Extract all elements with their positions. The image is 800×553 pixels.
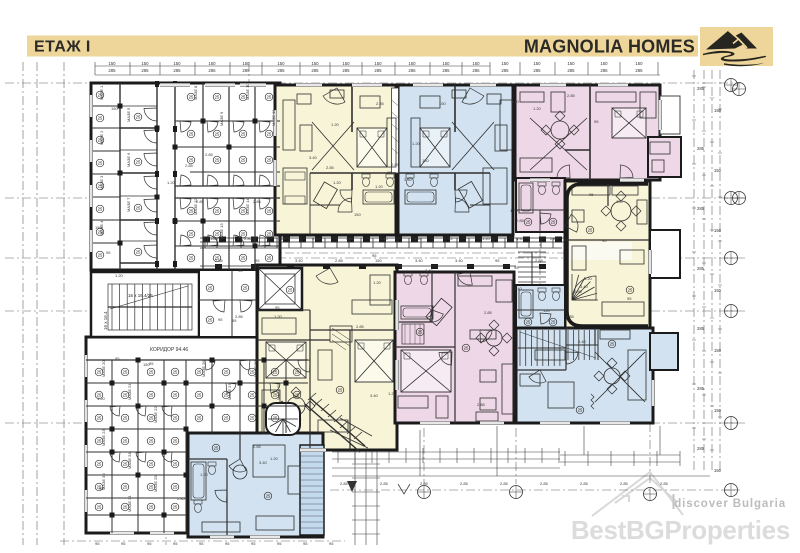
svg-text:285: 285 (208, 68, 216, 73)
svg-text:1.20: 1.20 (412, 141, 421, 146)
svg-text:25: 25 (267, 256, 272, 261)
svg-text:2.85: 2.85 (340, 481, 349, 486)
svg-text:285: 285 (697, 206, 705, 211)
svg-text:МАЗЕ 22: МАЗЕ 22 (153, 406, 158, 423)
svg-text:25: 25 (241, 132, 246, 137)
svg-text:95: 95 (251, 541, 256, 546)
svg-text:25: 25 (98, 253, 103, 258)
svg-text:25: 25 (628, 288, 633, 293)
svg-text:25: 25 (173, 485, 178, 490)
svg-text:150: 150 (95, 225, 102, 230)
svg-text:16 x 16.4: 16 x 16.4 (103, 311, 108, 330)
svg-text:150: 150 (600, 61, 608, 66)
svg-text:150: 150 (714, 288, 722, 293)
svg-text:95: 95 (627, 296, 632, 301)
svg-text:25: 25 (197, 416, 202, 421)
svg-text:95: 95 (95, 541, 100, 546)
svg-text:1.20: 1.20 (388, 391, 397, 396)
svg-text:2.85: 2.85 (660, 481, 669, 486)
svg-text:16 x 16.4/25: 16 x 16.4/25 (128, 293, 153, 298)
svg-text:95: 95 (275, 305, 280, 310)
svg-text:25: 25 (338, 388, 343, 393)
svg-text:95: 95 (218, 317, 223, 322)
svg-text:3.40: 3.40 (309, 155, 318, 160)
svg-text:МАЗЕ 10: МАЗЕ 10 (245, 83, 250, 100)
svg-text:2.85: 2.85 (235, 314, 244, 319)
svg-text:25: 25 (243, 286, 248, 291)
svg-text:1.20: 1.20 (584, 276, 593, 281)
svg-text:285: 285 (697, 326, 705, 331)
svg-text:МАЗЕ 14: МАЗЕ 14 (245, 198, 250, 215)
svg-text:25: 25 (267, 132, 272, 137)
svg-text:МАЗЕ 6: МАЗЕ 6 (126, 152, 131, 167)
svg-text:1.20: 1.20 (482, 236, 491, 241)
svg-text:1.20: 1.20 (278, 236, 287, 241)
svg-text:150: 150 (374, 61, 382, 66)
svg-text:МАЗЕ 27: МАЗЕ 27 (227, 383, 232, 400)
svg-text:95: 95 (277, 541, 282, 546)
svg-text:25: 25 (250, 416, 255, 421)
svg-text:2.85: 2.85 (391, 162, 400, 167)
svg-text:25: 25 (267, 232, 272, 237)
svg-text:285: 285 (533, 68, 541, 73)
svg-text:МАЗЕ 23: МАЗЕ 23 (101, 429, 106, 446)
svg-text:2.85: 2.85 (540, 481, 549, 486)
svg-text:150: 150 (242, 61, 250, 66)
svg-text:95: 95 (238, 268, 243, 273)
svg-text:150: 150 (714, 348, 722, 353)
svg-text:BestBGProperties: BestBGProperties (571, 515, 790, 545)
svg-text:95: 95 (495, 258, 500, 263)
svg-text:МАЗЕ 11: МАЗЕ 11 (271, 109, 276, 126)
svg-text:3.40: 3.40 (404, 177, 413, 182)
svg-text:1.20: 1.20 (380, 236, 389, 241)
svg-text:3.40: 3.40 (514, 286, 523, 291)
svg-text:МАЗЕ 9: МАЗЕ 9 (219, 111, 224, 126)
svg-text:3.40: 3.40 (346, 236, 355, 241)
svg-text:25: 25 (149, 393, 154, 398)
svg-text:1.20: 1.20 (200, 472, 209, 477)
svg-text:25: 25 (123, 416, 128, 421)
svg-text:3.40: 3.40 (415, 258, 424, 263)
svg-text:285: 285 (242, 68, 250, 73)
svg-text:150: 150 (714, 168, 722, 173)
svg-text:25: 25 (418, 330, 423, 335)
svg-text:МАЗЕ 5: МАЗЕ 5 (126, 107, 131, 122)
svg-text:2.85: 2.85 (215, 258, 224, 263)
svg-text:2.85: 2.85 (420, 481, 429, 486)
svg-text:95: 95 (225, 541, 230, 546)
svg-text:95: 95 (602, 238, 607, 243)
svg-text:95: 95 (594, 119, 599, 124)
svg-text:25: 25 (149, 505, 154, 510)
svg-text:1.20: 1.20 (115, 273, 124, 278)
svg-text:150: 150 (533, 61, 541, 66)
svg-text:25: 25 (266, 494, 271, 499)
svg-text:3.40: 3.40 (455, 258, 464, 263)
svg-text:95: 95 (99, 486, 104, 491)
svg-text:25: 25 (208, 318, 213, 323)
svg-text:25: 25 (288, 288, 293, 293)
svg-text:285: 285 (472, 68, 480, 73)
svg-text:95: 95 (121, 541, 126, 546)
svg-text:2.85: 2.85 (566, 314, 575, 319)
svg-text:25: 25 (208, 286, 213, 291)
svg-text:150: 150 (442, 61, 450, 66)
svg-text:25: 25 (224, 416, 229, 421)
svg-text:150: 150 (342, 61, 350, 66)
svg-text:25: 25 (241, 158, 246, 163)
svg-text:95: 95 (448, 236, 453, 241)
svg-text:285: 285 (501, 68, 509, 73)
svg-text:150: 150 (111, 106, 118, 111)
svg-text:3.40: 3.40 (516, 236, 525, 241)
svg-text:2.85: 2.85 (244, 236, 253, 241)
svg-text:2.85: 2.85 (484, 310, 493, 315)
svg-text:25: 25 (173, 439, 178, 444)
svg-text:95: 95 (329, 541, 334, 546)
svg-text:25: 25 (189, 158, 194, 163)
svg-text:25: 25 (250, 393, 255, 398)
svg-text:25: 25 (149, 370, 154, 375)
svg-text:25: 25 (189, 232, 194, 237)
svg-text:150: 150 (422, 158, 429, 163)
svg-text:1.20: 1.20 (414, 236, 423, 241)
svg-text:25: 25 (98, 207, 103, 212)
svg-text:150: 150 (501, 61, 509, 66)
svg-text:25: 25 (149, 439, 154, 444)
svg-text:25: 25 (123, 370, 128, 375)
svg-text:25: 25 (136, 115, 141, 120)
svg-text:150: 150 (714, 228, 722, 233)
svg-text:1.20: 1.20 (274, 314, 283, 319)
svg-text:95: 95 (255, 258, 260, 263)
svg-text:1.20: 1.20 (373, 280, 382, 285)
svg-text:25: 25 (526, 320, 531, 325)
svg-text:25: 25 (123, 485, 128, 490)
svg-text:25: 25 (273, 370, 278, 375)
svg-text:95: 95 (372, 253, 377, 258)
svg-text:2.85: 2.85 (253, 444, 262, 449)
svg-text:2.85: 2.85 (326, 165, 335, 170)
svg-text:2.85: 2.85 (500, 481, 509, 486)
svg-text:25: 25 (551, 220, 556, 225)
svg-text:25: 25 (97, 462, 102, 467)
svg-text:285: 285 (408, 68, 416, 73)
svg-text:285: 285 (108, 68, 116, 73)
svg-text:150: 150 (311, 61, 319, 66)
svg-text:25: 25 (98, 161, 103, 166)
svg-text:95: 95 (147, 541, 152, 546)
svg-text:2.85: 2.85 (196, 199, 205, 204)
svg-text:25: 25 (136, 206, 141, 211)
svg-text:285: 285 (567, 68, 575, 73)
svg-text:285: 285 (697, 266, 705, 271)
svg-text:150: 150 (375, 258, 382, 263)
svg-text:25: 25 (136, 250, 141, 255)
svg-text:25: 25 (173, 370, 178, 375)
svg-text:25: 25 (136, 160, 141, 165)
svg-text:3.40: 3.40 (370, 393, 379, 398)
svg-text:150: 150 (635, 61, 643, 66)
svg-text:95: 95 (199, 541, 204, 546)
svg-text:25: 25 (173, 505, 178, 510)
svg-text:2.85: 2.85 (356, 324, 365, 329)
svg-text:2.85: 2.85 (335, 258, 344, 263)
svg-text:2.85: 2.85 (516, 218, 525, 223)
svg-text:150: 150 (210, 236, 217, 241)
svg-text:25: 25 (97, 416, 102, 421)
svg-text:150: 150 (439, 101, 446, 106)
svg-text:25: 25 (526, 220, 531, 225)
svg-text:95: 95 (149, 361, 154, 366)
svg-text:ЕТАЖ I: ЕТАЖ I (34, 39, 91, 56)
svg-text:1.20: 1.20 (510, 208, 519, 213)
svg-text:150: 150 (354, 212, 361, 217)
svg-text:МАЗЕ 24: МАЗЕ 24 (127, 452, 132, 469)
svg-text:150: 150 (208, 61, 216, 66)
svg-text:285: 285 (141, 68, 149, 73)
svg-text:2.85: 2.85 (376, 101, 385, 106)
svg-text:150: 150 (277, 61, 285, 66)
svg-text:25: 25 (189, 256, 194, 261)
svg-text:150: 150 (108, 61, 116, 66)
svg-text:285: 285 (697, 386, 705, 391)
svg-text:3.40: 3.40 (425, 268, 434, 273)
svg-text:25: 25 (215, 209, 220, 214)
svg-text:МАЗЕ 2: МАЗЕ 2 (99, 130, 104, 145)
svg-text:285: 285 (600, 68, 608, 73)
svg-text:95: 95 (387, 170, 392, 175)
svg-text:25: 25 (224, 370, 229, 375)
svg-text:150: 150 (408, 61, 416, 66)
svg-text:2.85: 2.85 (477, 402, 486, 407)
svg-text:150: 150 (714, 468, 722, 473)
svg-text:1.20: 1.20 (375, 184, 384, 189)
svg-text:25: 25 (214, 446, 219, 451)
svg-text:2.85: 2.85 (205, 152, 214, 157)
svg-text:2.85: 2.85 (574, 289, 583, 294)
svg-text:3.40: 3.40 (259, 460, 268, 465)
svg-text:150: 150 (543, 308, 550, 313)
svg-text:25: 25 (215, 132, 220, 137)
svg-text:2.85: 2.85 (380, 481, 389, 486)
svg-text:25: 25 (123, 439, 128, 444)
svg-text:МАЗЕ 3: МАЗЕ 3 (99, 175, 104, 190)
svg-text:МАЗЕ 29: МАЗЕ 29 (276, 383, 281, 400)
svg-text:2.85: 2.85 (550, 236, 559, 241)
svg-text:95: 95 (514, 265, 519, 270)
svg-text:285: 285 (311, 68, 319, 73)
svg-text:285: 285 (635, 68, 643, 73)
svg-text:25: 25 (98, 116, 103, 121)
svg-text:2.85: 2.85 (567, 93, 576, 98)
svg-text:2.85: 2.85 (535, 258, 544, 263)
svg-text:25: 25 (241, 256, 246, 261)
svg-text:25: 25 (267, 158, 272, 163)
svg-text:25: 25 (588, 228, 593, 233)
svg-text:95: 95 (589, 192, 594, 197)
svg-text:МАЗЕ 21: МАЗЕ 21 (127, 383, 132, 400)
svg-text:25: 25 (295, 370, 300, 375)
svg-text:25: 25 (173, 462, 178, 467)
svg-text:95: 95 (173, 541, 178, 546)
svg-text:МАЗЕ 31: МАЗЕ 31 (127, 495, 132, 512)
svg-text:25: 25 (97, 505, 102, 510)
svg-text:25: 25 (578, 408, 583, 413)
svg-text:25: 25 (215, 158, 220, 163)
svg-text:25: 25 (267, 209, 272, 214)
svg-text:150: 150 (714, 108, 722, 113)
svg-text:1.20: 1.20 (331, 122, 340, 127)
svg-text:МАЗЕ 13: МАЗЕ 13 (219, 223, 224, 240)
svg-text:95: 95 (106, 250, 111, 255)
svg-text:2.85: 2.85 (620, 481, 629, 486)
svg-text:МАЗЕ 28: МАЗЕ 28 (253, 360, 258, 377)
svg-text:285: 285 (697, 86, 705, 91)
svg-text:25: 25 (551, 320, 556, 325)
svg-text:150: 150 (567, 61, 575, 66)
svg-text:25: 25 (610, 342, 615, 347)
svg-text:2.85: 2.85 (580, 481, 589, 486)
svg-text:25: 25 (273, 416, 278, 421)
svg-text:285: 285 (277, 68, 285, 73)
svg-text:3.40: 3.40 (295, 258, 304, 263)
svg-text:150: 150 (472, 61, 480, 66)
svg-text:25: 25 (267, 95, 272, 100)
svg-text:МАЗЕ 7: МАЗЕ 7 (126, 197, 131, 212)
svg-text:MAGNOLIA HOMES: MAGNOLIA HOMES (524, 37, 695, 57)
svg-text:285: 285 (342, 68, 350, 73)
svg-text:150: 150 (714, 408, 722, 413)
svg-text:2.85: 2.85 (253, 199, 262, 204)
svg-text:95: 95 (303, 541, 308, 546)
svg-text:25: 25 (197, 393, 202, 398)
svg-text:МАЗЕ 1: МАЗЕ 1 (99, 85, 104, 100)
svg-text:1.20: 1.20 (270, 456, 279, 461)
svg-text:МАЗЕ 25: МАЗЕ 25 (153, 475, 158, 492)
svg-text:2.85: 2.85 (185, 163, 194, 168)
svg-text:3.40: 3.40 (566, 325, 575, 330)
svg-text:25: 25 (215, 95, 220, 100)
svg-text:МАЗЕ 8: МАЗЕ 8 (193, 85, 198, 100)
svg-text:25: 25 (295, 393, 300, 398)
svg-text:1.20: 1.20 (333, 180, 342, 185)
svg-text:285: 285 (697, 146, 705, 151)
svg-text:2.85: 2.85 (312, 236, 321, 241)
svg-text:95: 95 (115, 356, 120, 361)
svg-text:25: 25 (173, 416, 178, 421)
svg-text:285: 285 (697, 446, 705, 451)
svg-text:3.40: 3.40 (511, 99, 520, 104)
svg-text:285: 285 (173, 68, 181, 73)
svg-text:25: 25 (189, 132, 194, 137)
svg-text:25: 25 (173, 393, 178, 398)
svg-text:МАЗЕ 20: МАЗЕ 20 (101, 360, 106, 377)
svg-text:150: 150 (616, 199, 623, 204)
svg-text:150: 150 (141, 61, 149, 66)
svg-text:1.20: 1.20 (533, 106, 542, 111)
svg-text:150: 150 (173, 61, 181, 66)
svg-text:МАЗЕ 26: МАЗЕ 26 (201, 360, 206, 377)
svg-text:3.40: 3.40 (578, 339, 587, 344)
svg-text:discover Bulgaria: discover Bulgaria (674, 498, 786, 510)
svg-text:1.20: 1.20 (167, 180, 176, 185)
svg-text:25: 25 (149, 462, 154, 467)
svg-text:25: 25 (464, 346, 469, 351)
svg-text:1.20: 1.20 (97, 396, 106, 401)
svg-text:2.85: 2.85 (460, 481, 469, 486)
svg-text:285: 285 (374, 68, 382, 73)
svg-text:285: 285 (442, 68, 450, 73)
svg-text:2.85: 2.85 (177, 496, 186, 501)
svg-text:КОРИДОР 94.46: КОРИДОР 94.46 (150, 347, 188, 353)
